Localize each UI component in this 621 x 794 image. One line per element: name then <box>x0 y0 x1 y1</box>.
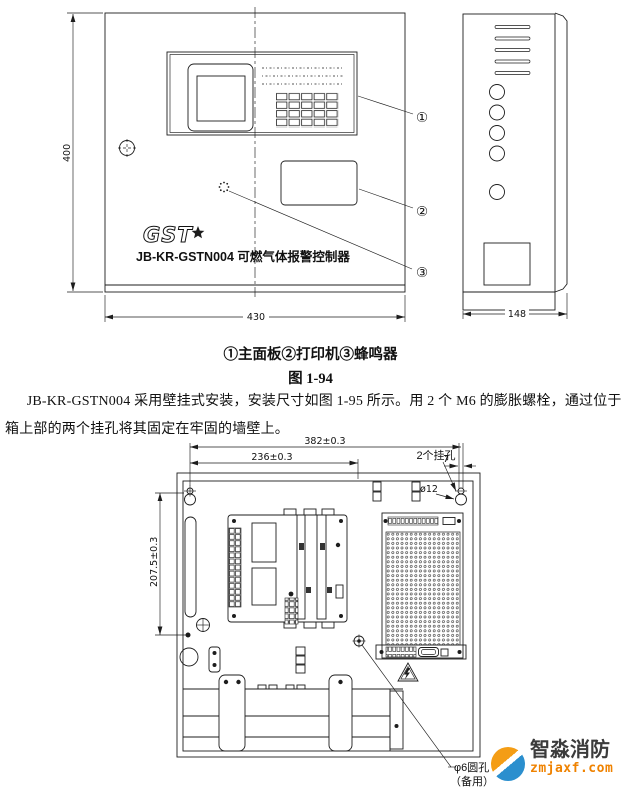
watermark-brand: 智淼消防 <box>530 739 613 761</box>
callout-1: ① <box>416 110 428 126</box>
side-bracket <box>390 691 403 749</box>
door-flange <box>555 13 567 292</box>
vent-slots <box>495 26 530 75</box>
bottom-skirt <box>463 292 555 310</box>
callout-3: ③ <box>416 265 428 281</box>
buzzer-holes <box>219 182 230 193</box>
tie-mounts <box>296 665 305 673</box>
chassis-screw-icon <box>197 619 210 632</box>
dim-382-label: 382±0.3 <box>304 436 345 447</box>
hang-hole-left <box>184 486 196 506</box>
board-switch <box>336 585 343 598</box>
figure-1-94-drawing: GST JB-KR-GSTN004 可燃气体报警控制器 400 430 <box>0 0 621 333</box>
lock-screw-icon <box>118 139 136 157</box>
phi12-label: ø12 <box>420 484 438 495</box>
phi12-label-group: ø12 <box>420 484 454 499</box>
paragraph-line-1: JB-KR-GSTN004 采用壁挂式安装，安装尺寸如图 1-95 所示。用 2… <box>5 388 616 416</box>
cable-clamps <box>373 482 420 501</box>
daughter-board-2 <box>317 515 326 619</box>
board-window-1 <box>252 523 276 562</box>
dim-400-label: 400 <box>62 144 73 162</box>
spare-hole-label-1: φ6圆孔 <box>454 761 489 774</box>
gst-star-icon <box>192 226 205 238</box>
model-label: JB-KR-GSTN004 可燃气体报警控制器 <box>136 249 350 264</box>
watermark-url: zmjaxf.com <box>530 761 613 776</box>
battery-strap-1 <box>219 675 245 751</box>
wiring-slot <box>185 517 196 617</box>
dim-207-label: 207.5±0.3 <box>149 537 160 587</box>
board-window-2 <box>252 568 276 605</box>
side-view: 148 <box>463 13 567 320</box>
gst-logo: GST <box>143 223 204 247</box>
manual-page: GST JB-KR-GSTN004 可燃气体报警控制器 400 430 <box>0 0 621 794</box>
spare-hole-label-2: （备用） <box>450 774 494 788</box>
power-supply <box>376 513 466 659</box>
side-cutout <box>484 243 530 285</box>
hang-holes-label: 2个挂孔 <box>416 448 455 462</box>
battery-compartment <box>183 675 403 751</box>
battery-strap-2 <box>329 675 352 751</box>
psu-vent-grid <box>386 532 460 645</box>
lcd-display <box>188 64 253 131</box>
dimension-236: 236±0.3 <box>190 452 358 479</box>
hang-hole-right <box>455 488 467 505</box>
bottom-left-hardware <box>180 647 305 673</box>
side-indicator-holes <box>490 85 505 200</box>
watermark: 智淼消防 zmjaxf.com <box>491 739 613 781</box>
gst-logo-text: GST <box>143 223 193 247</box>
dimension-148: 148 <box>463 293 567 320</box>
figure-legend: ①主面板②打印机③蜂鸣器 <box>0 343 621 364</box>
dimension-400: 400 <box>62 13 103 292</box>
high-voltage-warning-icon <box>398 663 418 681</box>
front-view: GST JB-KR-GSTN004 可燃气体报警控制器 400 430 <box>62 7 428 323</box>
figure-number: 图 1-94 <box>0 367 621 388</box>
indicator-led-rows <box>262 68 343 84</box>
dim-148-label: 148 <box>508 309 526 320</box>
keypad <box>276 93 339 128</box>
callout-2: ② <box>416 204 428 220</box>
printer-door <box>281 161 357 205</box>
zhimiao-logo-icon <box>491 747 525 781</box>
dimension-430: 430 <box>105 295 405 323</box>
dim-430-label: 430 <box>247 312 265 323</box>
clamp-bracket <box>209 647 220 672</box>
main-board <box>228 509 347 628</box>
terminal-strip <box>229 528 241 607</box>
dimension-382: 382±0.3 <box>190 436 463 488</box>
dimension-207: 207.5±0.3 <box>149 493 191 638</box>
dim-236-label: 236±0.3 <box>251 452 292 463</box>
